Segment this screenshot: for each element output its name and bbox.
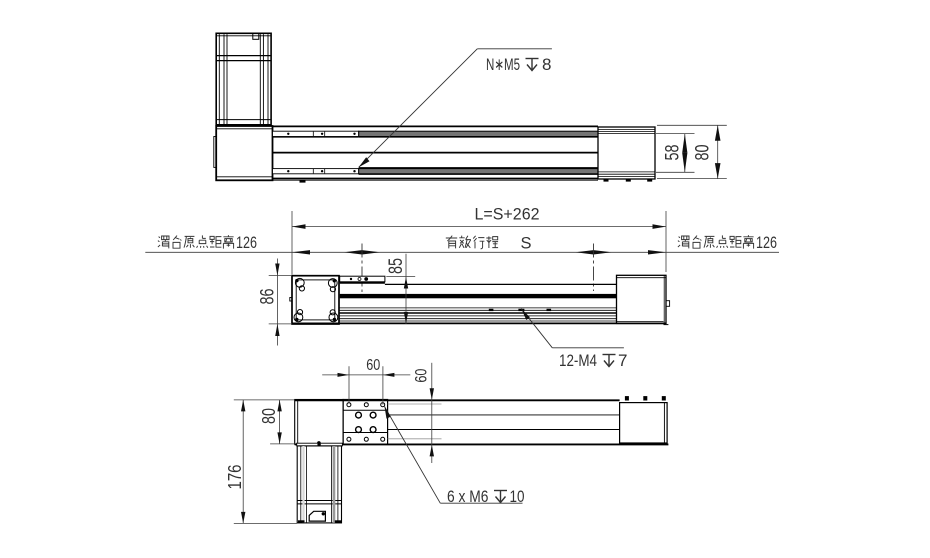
svg-text:7: 7: [618, 351, 627, 370]
svg-text:6 x M6: 6 x M6: [447, 487, 489, 506]
svg-text:60: 60: [366, 357, 380, 374]
svg-text:58: 58: [663, 145, 684, 161]
svg-text:8: 8: [542, 55, 551, 74]
svg-text:12-M4: 12-M4: [559, 351, 597, 370]
svg-text:60: 60: [412, 369, 431, 383]
svg-text:10: 10: [510, 487, 525, 506]
svg-text:80: 80: [258, 408, 279, 424]
svg-text:176: 176: [224, 465, 245, 490]
svg-text:80: 80: [693, 145, 714, 161]
svg-text:85: 85: [386, 258, 407, 274]
svg-text:86: 86: [258, 289, 279, 305]
svg-text:N∗M5: N∗M5: [486, 55, 520, 74]
svg-text:L=S+262: L=S+262: [475, 205, 540, 224]
